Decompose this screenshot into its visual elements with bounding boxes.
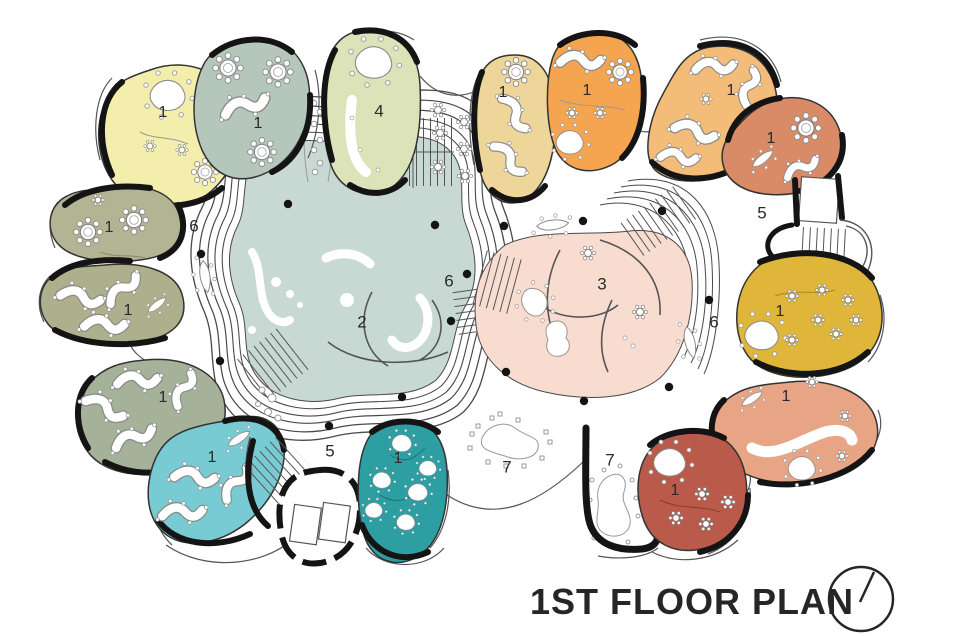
room-label: 1 — [499, 84, 508, 101]
room-classroom-left-olive-a: 1 — [50, 187, 183, 262]
room-label: 4 — [374, 101, 383, 120]
room-label: 1 — [583, 82, 592, 99]
room-label: 1 — [159, 104, 168, 121]
room-label: 1 — [124, 302, 133, 319]
room-classroom-right-brick: 1 — [638, 431, 748, 552]
room-label: 1 — [782, 388, 791, 405]
room-label: 1 — [394, 450, 403, 467]
floor-plan-drawing: 1 1 4 1 — [0, 0, 965, 636]
zone-label-stair-bottom-left: 5 — [325, 441, 334, 460]
room-classroom-top-wheat: 1 — [474, 55, 555, 203]
zone-label-play-left: 7 — [502, 457, 511, 476]
zone-label-play-right: 7 — [605, 450, 614, 469]
room-multipurpose-green: 4 — [323, 30, 421, 193]
room-classroom-top-orange: 1 — [547, 32, 643, 171]
room-label: 1 — [671, 482, 680, 499]
room-label: 1 — [767, 130, 776, 147]
room-classroom-left-olive-b: 1 — [40, 260, 184, 344]
room-label: 1 — [208, 449, 217, 466]
page-title: 1ST FLOOR PLAN — [530, 581, 854, 622]
room-label: 1 — [727, 82, 736, 99]
room-classroom-bottom-darkteal: 1 — [358, 420, 447, 562]
zone-label-corridor-right: 6 — [709, 312, 718, 331]
zone-label-corridor-left: 6 — [189, 216, 198, 235]
zone-label-corridor-center: 6 — [444, 271, 453, 290]
room-classroom-right-mustard: 1 — [737, 251, 882, 377]
zone-label-central-hall: 2 — [357, 312, 366, 331]
floor-plan-canvas: 1 1 4 1 — [0, 0, 965, 636]
room-label: 1 — [254, 115, 263, 132]
room-label: 1 — [776, 303, 785, 320]
room-label: 1 — [105, 219, 114, 236]
service-core — [279, 470, 360, 564]
zone-label-activity-area: 3 — [597, 274, 606, 293]
zone-label-stair-top-right: 5 — [757, 203, 766, 222]
room-label: 1 — [159, 389, 168, 406]
room-classroom-top-sage: 1 — [194, 38, 310, 179]
